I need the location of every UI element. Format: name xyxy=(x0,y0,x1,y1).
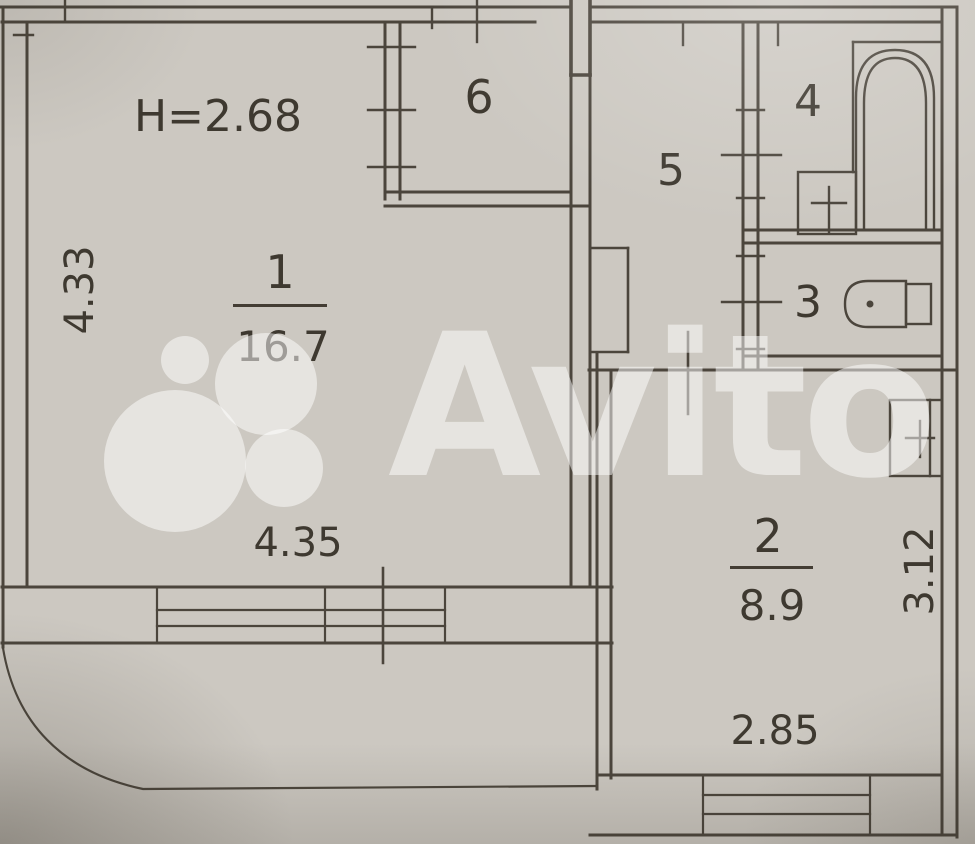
bath-wc-wall xyxy=(722,22,942,370)
bathroom-sink-icon xyxy=(798,172,856,234)
room6-door-ticks xyxy=(368,47,415,167)
room-1-number: 1 xyxy=(265,249,294,295)
room-4-number: 4 xyxy=(794,80,822,124)
dim-room1-4-35: 4.35 xyxy=(253,523,342,563)
dim-right-3-12: 3.12 xyxy=(900,526,940,615)
dim-room2-2-85: 2.85 xyxy=(730,711,819,751)
room-2-fraction-line xyxy=(730,566,813,569)
dim-left-4-33: 4.33 xyxy=(60,245,100,334)
kitchen-sink-icon xyxy=(890,400,942,476)
floorplan-photo: H=2.68 4.33 1 16.7 4.35 6 5 4 3 2 8.9 3.… xyxy=(0,0,975,844)
ceiling-height-label: H=2.68 xyxy=(134,95,302,139)
hall-kitchen-wall xyxy=(589,332,957,414)
room-1-fraction-line xyxy=(233,304,327,307)
toilet-icon xyxy=(845,281,931,327)
kitchen-window xyxy=(703,775,870,835)
room-2-number: 2 xyxy=(753,513,782,559)
entrance-pier xyxy=(571,0,590,75)
vent-duct xyxy=(590,248,628,352)
room-1-area: 16.7 xyxy=(236,326,330,368)
room1-window-band xyxy=(2,568,612,663)
room-5-number: 5 xyxy=(657,149,685,193)
room-3-number: 3 xyxy=(794,281,822,325)
bathtub-icon xyxy=(853,42,942,230)
room-6-number: 6 xyxy=(464,74,493,120)
room-2-area: 8.9 xyxy=(739,585,806,627)
balcony-outline xyxy=(3,648,597,789)
room1-hall-wall xyxy=(571,75,590,587)
